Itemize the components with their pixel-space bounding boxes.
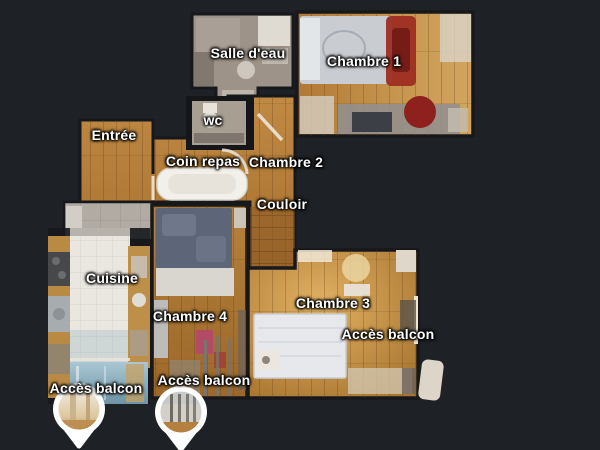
cuisine-top-counter <box>70 228 130 236</box>
location-pin-icon <box>53 383 105 446</box>
room-cuisine[interactable] <box>48 228 150 404</box>
room-chambre-3[interactable] <box>248 250 418 398</box>
wall-entree-coinrepas <box>152 120 155 174</box>
room-chambre-1[interactable] <box>297 12 473 136</box>
balcony-pin-cuisine[interactable] <box>53 383 105 446</box>
floorplan-viewport: Salle d'eau Chambre 1 wc Entrée Coin rep… <box>0 0 600 450</box>
couloir-planks <box>250 207 295 268</box>
floorplan-svg <box>0 0 600 450</box>
coin-repas-table <box>157 168 247 200</box>
balcony-pin-chambre-4[interactable] <box>155 386 207 449</box>
location-pin-icon <box>155 386 207 449</box>
balcony-floor-chambre-3 <box>418 359 445 401</box>
room-chambre-4[interactable] <box>152 205 247 398</box>
